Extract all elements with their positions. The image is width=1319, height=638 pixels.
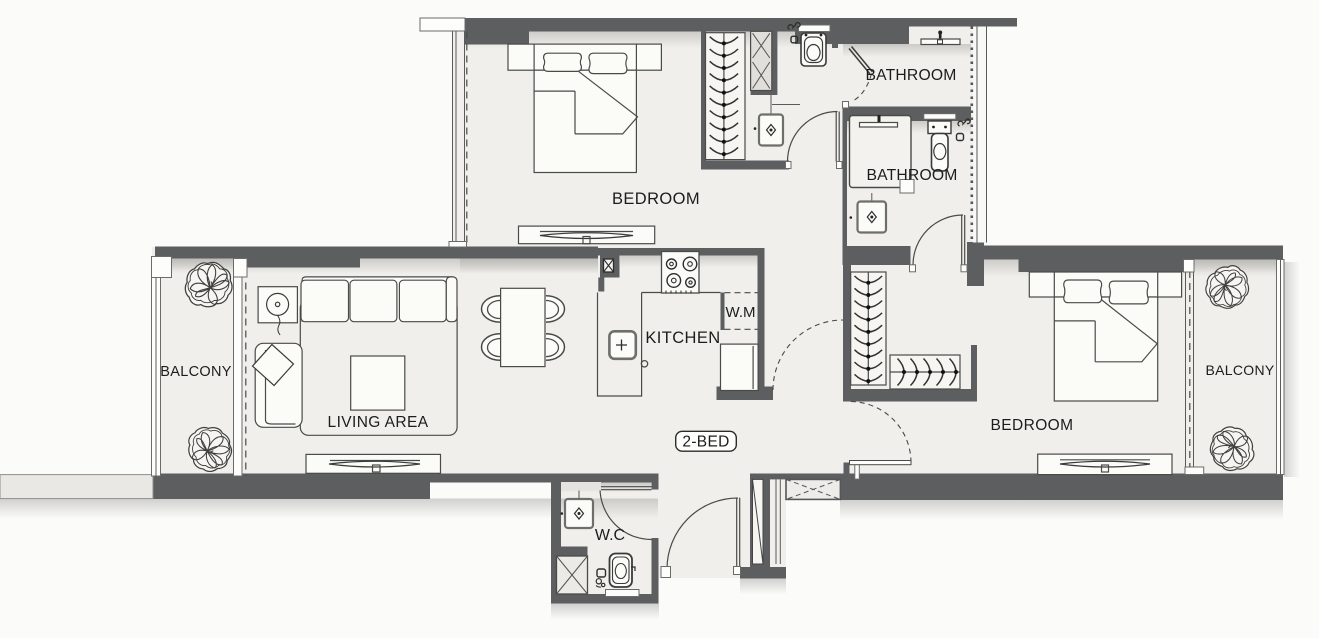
svg-text:BATHROOM: BATHROOM [865, 67, 956, 84]
svg-text:KITCHEN: KITCHEN [645, 329, 720, 347]
svg-text:BEDROOM: BEDROOM [612, 190, 700, 208]
svg-text:BALCONY: BALCONY [1205, 362, 1274, 378]
svg-text:W.M: W.M [726, 304, 756, 321]
svg-text:W.C: W.C [595, 527, 625, 544]
svg-text:BATHROOM: BATHROOM [866, 167, 957, 184]
svg-text:2-BED: 2-BED [682, 434, 729, 451]
svg-text:BEDROOM: BEDROOM [991, 417, 1074, 434]
svg-text:LIVING AREA: LIVING AREA [328, 414, 429, 431]
svg-text:BALCONY: BALCONY [160, 364, 231, 380]
